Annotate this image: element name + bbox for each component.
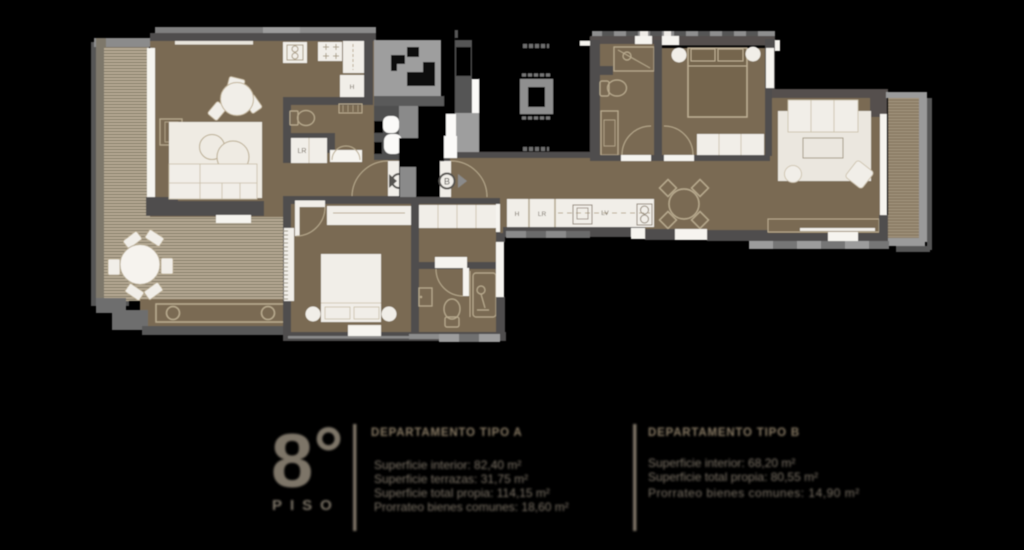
svg-text:Superficie total propia: 80,55: Superficie total propia: 80,55 m² bbox=[648, 470, 818, 484]
svg-text:B: B bbox=[444, 177, 450, 187]
svg-text:PISO: PISO bbox=[272, 497, 340, 514]
svg-text:LR: LR bbox=[298, 148, 307, 155]
svg-text:H: H bbox=[515, 211, 520, 218]
svg-text:LR: LR bbox=[538, 211, 547, 218]
svg-text:DEPARTAMENTO TIPO A: DEPARTAMENTO TIPO A bbox=[371, 427, 523, 439]
svg-text:Superficie interior: 82,40 m²: Superficie interior: 82,40 m² bbox=[374, 458, 521, 472]
svg-text:8°: 8° bbox=[271, 412, 344, 504]
svg-text:Prorrateo bienes comunes: 18,6: Prorrateo bienes comunes: 18,60 m² bbox=[374, 500, 569, 514]
svg-text:Superficie total propia: 114,1: Superficie total propia: 114,15 m² bbox=[374, 486, 550, 500]
svg-text:DEPARTAMENTO TIPO B: DEPARTAMENTO TIPO B bbox=[648, 427, 800, 439]
svg-text:LV: LV bbox=[601, 210, 609, 217]
svg-text:H: H bbox=[350, 84, 355, 91]
svg-text:Superficie terrazas: 31,75 m²: Superficie terrazas: 31,75 m² bbox=[374, 472, 528, 486]
svg-text:Superficie interior: 68,20 m²: Superficie interior: 68,20 m² bbox=[648, 456, 795, 470]
svg-text:Prorrateo bienes comunes: 14,9: Prorrateo bienes comunes: 14,90 m² bbox=[648, 486, 860, 500]
